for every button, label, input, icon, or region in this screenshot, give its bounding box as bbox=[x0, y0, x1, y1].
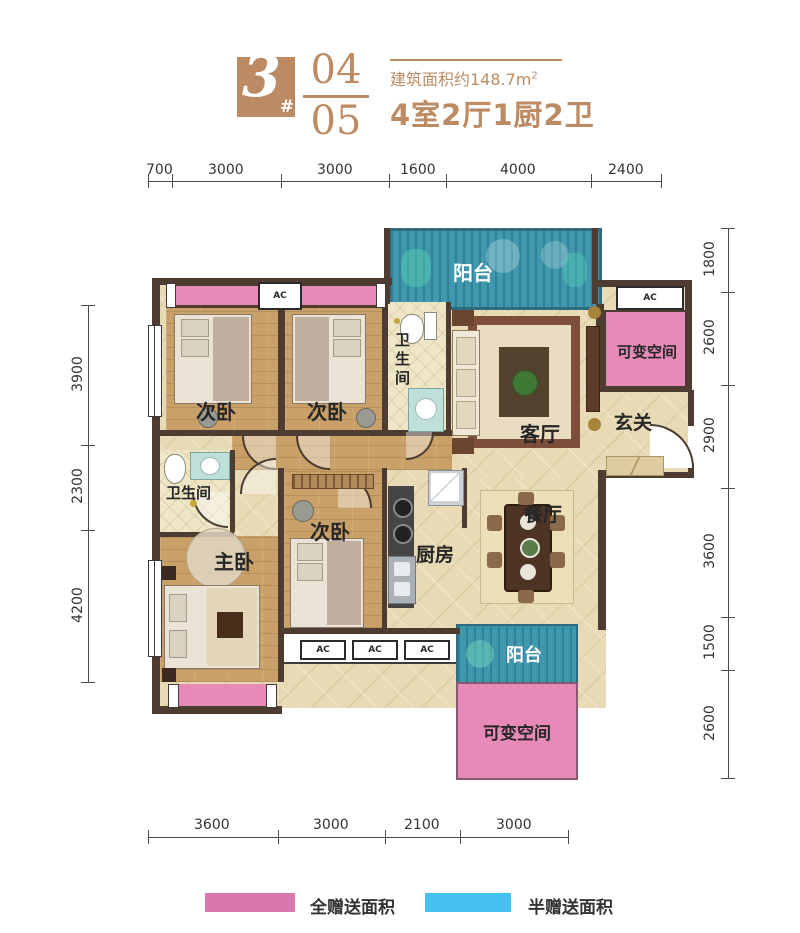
wall bbox=[600, 386, 690, 392]
ac-unit-box: AC bbox=[300, 640, 346, 660]
window bbox=[266, 684, 277, 708]
tick bbox=[278, 830, 279, 844]
tick bbox=[721, 385, 735, 386]
dim-top-3000b: 3000 bbox=[317, 162, 353, 178]
wall bbox=[382, 468, 387, 628]
dimension-line-bottom bbox=[148, 837, 568, 838]
master-bedroom-label: 主卧 bbox=[214, 546, 254, 575]
bedroom-1-label: 次卧 bbox=[196, 396, 236, 425]
balcony-top-label: 阳台 bbox=[453, 257, 493, 286]
dim-right-3600: 3600 bbox=[702, 521, 718, 581]
kitchen-label: 厨房 bbox=[416, 540, 454, 567]
window bbox=[148, 560, 162, 657]
unit-number-bottom: 05 bbox=[300, 101, 372, 141]
ac-label: AC bbox=[643, 293, 657, 303]
layout-summary: 4室2厅1厨2卫 bbox=[390, 92, 595, 134]
dim-bottom-3000b: 3000 bbox=[496, 817, 532, 833]
wall bbox=[446, 302, 451, 432]
balcony-bottom-label: 阳台 bbox=[506, 641, 542, 667]
wall bbox=[685, 284, 692, 390]
wall bbox=[278, 308, 285, 432]
chair bbox=[487, 515, 502, 531]
dim-right-1500: 1500 bbox=[702, 612, 718, 672]
tick bbox=[281, 174, 282, 188]
window bbox=[376, 283, 386, 308]
tick bbox=[568, 830, 569, 844]
wall bbox=[592, 228, 598, 304]
tick bbox=[81, 305, 95, 306]
flex-space-bottom: 可变空间 bbox=[456, 682, 578, 780]
living-room-label: 客厅 bbox=[520, 418, 560, 447]
toilet-tank bbox=[424, 312, 437, 340]
wall bbox=[382, 302, 388, 432]
dim-left-3900: 3900 bbox=[70, 344, 86, 404]
dim-left-4200: 4200 bbox=[70, 575, 86, 635]
plant-icon bbox=[563, 253, 587, 287]
tick bbox=[721, 292, 735, 293]
dim-top-2400: 2400 bbox=[608, 162, 644, 178]
legend-swatch-full-gift bbox=[205, 893, 295, 912]
area-text: 建筑面积约148.7m2 bbox=[390, 66, 538, 90]
wall bbox=[688, 390, 694, 426]
window bbox=[148, 325, 162, 417]
chair bbox=[550, 552, 565, 568]
ac-unit-box: AC bbox=[404, 640, 450, 660]
toilet-icon bbox=[164, 454, 186, 484]
bedroom-2-label: 次卧 bbox=[307, 396, 347, 425]
bedroom-3-label: 次卧 bbox=[310, 516, 350, 545]
dim-right-2600a: 2600 bbox=[702, 307, 718, 367]
dimension-line-right bbox=[728, 228, 729, 778]
window bbox=[168, 684, 179, 708]
tick bbox=[81, 445, 95, 446]
ac-unit-box: AC bbox=[258, 282, 302, 310]
tick bbox=[385, 830, 386, 844]
flex-space-bottom-label: 可变空间 bbox=[483, 719, 551, 744]
dining-room-label: 餐厅 bbox=[524, 500, 562, 527]
tick bbox=[591, 174, 592, 188]
floorplan-page: 3 # 04 05 建筑面积约148.7m2 4室2厅1厨2卫 700 3000… bbox=[0, 0, 800, 933]
dim-top-4000: 4000 bbox=[500, 162, 536, 178]
chair bbox=[487, 552, 502, 568]
tick bbox=[446, 174, 447, 188]
tick bbox=[389, 174, 390, 188]
balcony-bottom: 阳台 bbox=[456, 624, 578, 686]
bathroom-1-label: 卫生间 bbox=[392, 332, 413, 389]
legend-label-half-gift: 半赠送面积 bbox=[528, 893, 613, 918]
tick bbox=[460, 830, 461, 844]
vanity-sink bbox=[190, 452, 230, 480]
kitchen-sink bbox=[388, 556, 416, 604]
dim-bottom-3000a: 3000 bbox=[313, 817, 349, 833]
wardrobe bbox=[292, 474, 374, 489]
dim-top-1600: 1600 bbox=[400, 162, 436, 178]
vanity-sink bbox=[408, 388, 444, 432]
tick bbox=[81, 530, 95, 531]
area-overline bbox=[390, 59, 562, 61]
dimension-line-top bbox=[148, 181, 662, 182]
ac-label: AC bbox=[368, 645, 382, 655]
tick bbox=[721, 617, 735, 618]
tv-cabinet bbox=[586, 326, 600, 412]
building-number-badge: 3 # bbox=[237, 57, 295, 117]
ac-unit-box: AC bbox=[352, 640, 398, 660]
flex-space-top-label: 可变空间 bbox=[617, 341, 677, 362]
ac-unit-box: AC bbox=[616, 286, 684, 310]
dim-bottom-3600: 3600 bbox=[194, 817, 230, 833]
ac-label: AC bbox=[316, 645, 330, 655]
shoe-cabinet bbox=[606, 456, 664, 476]
sconce-icon bbox=[588, 306, 601, 319]
gift-strip-bottom bbox=[178, 684, 274, 706]
bed bbox=[174, 314, 252, 404]
nightstand bbox=[162, 668, 176, 682]
end-table bbox=[452, 310, 474, 326]
tick bbox=[721, 670, 735, 671]
dim-top-3000a: 3000 bbox=[208, 162, 244, 178]
master-bed bbox=[164, 585, 260, 669]
plant-icon bbox=[401, 249, 431, 287]
entry-label: 玄关 bbox=[614, 408, 652, 435]
ac-label: AC bbox=[273, 291, 287, 301]
bathroom-2-label: 卫生间 bbox=[166, 482, 211, 503]
dim-top-700: 700 bbox=[146, 162, 173, 178]
tick bbox=[148, 830, 149, 844]
dimension-line-left bbox=[88, 305, 89, 682]
plant-icon bbox=[466, 640, 494, 668]
dim-right-1800: 1800 bbox=[702, 229, 718, 289]
wall bbox=[598, 470, 606, 630]
bed bbox=[292, 314, 366, 404]
fridge bbox=[428, 470, 464, 506]
legend-swatch-half-gift bbox=[425, 893, 511, 912]
tick bbox=[661, 174, 662, 188]
sconce-icon bbox=[588, 418, 601, 431]
tick bbox=[81, 682, 95, 683]
building-hash: # bbox=[280, 97, 294, 117]
tick bbox=[721, 778, 735, 779]
dim-left-2300: 2300 bbox=[70, 456, 86, 516]
end-table bbox=[452, 438, 474, 454]
nightstand bbox=[162, 566, 176, 580]
unit-number-top: 04 bbox=[300, 50, 372, 90]
stool-icon bbox=[356, 408, 376, 428]
window bbox=[166, 283, 176, 308]
light-icon bbox=[394, 318, 400, 324]
chair bbox=[518, 590, 534, 603]
dim-right-2900: 2900 bbox=[702, 405, 718, 465]
tick bbox=[721, 228, 735, 229]
wall bbox=[230, 450, 235, 532]
bed bbox=[290, 538, 364, 628]
ac-label: AC bbox=[420, 645, 434, 655]
dim-bottom-2100: 2100 bbox=[404, 817, 440, 833]
balcony-top: 阳台 bbox=[388, 228, 602, 310]
tick bbox=[721, 488, 735, 489]
flex-space-top: 可变空间 bbox=[604, 310, 690, 392]
dim-right-2600b: 2600 bbox=[702, 693, 718, 753]
building-number: 3 bbox=[242, 49, 281, 105]
legend-label-full-gift: 全赠送面积 bbox=[310, 893, 395, 918]
area-sup: 2 bbox=[531, 71, 537, 82]
sofa bbox=[452, 330, 480, 436]
